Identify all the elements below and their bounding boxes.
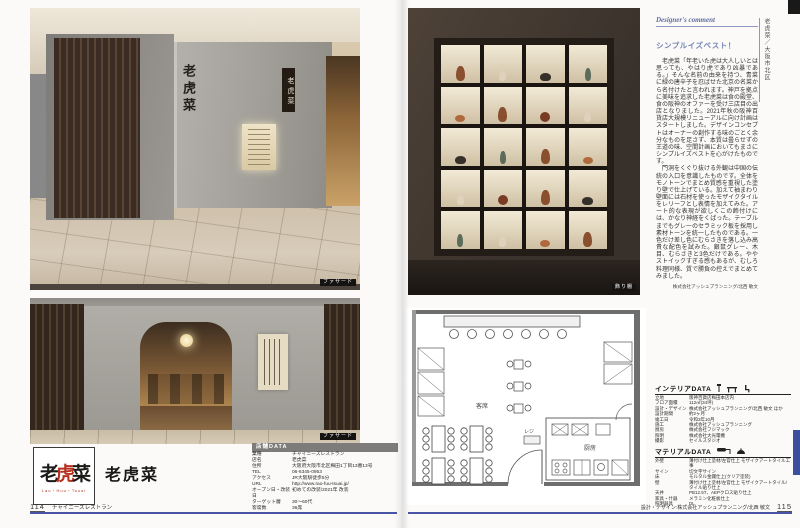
shelf-frame [434,38,614,256]
shelf-cell [569,170,608,208]
shelf-cell [526,45,565,83]
logo-char: 老 [40,464,56,485]
row-value: 初めての改装/2021年 改装 [292,488,398,500]
vase [457,234,463,247]
menu-board [242,124,276,170]
row-label: オープン日・改装日 [252,488,292,500]
category-edge-tab [793,430,800,475]
left-footer: 114チャイニーズレストラン [30,502,112,511]
table-row: 撮影セイルスタジオ [655,438,791,443]
comment-paragraph: 老虎菜「年老いた虎は大人しいとは思っても、やはり虎であり凶暴である。」そんな名前… [656,59,758,166]
material-icons [715,446,749,456]
calligraphy-sign: 老虎菜 [182,64,198,160]
corner-tab [788,0,800,14]
row-value: セイルスタジオ [689,438,791,443]
furniture-icons [715,383,755,393]
interior-data-table: インテリアDATA 立地阪神百貨店梅田本店内 フロア面積112㎡(34坪) 設計… [655,383,791,444]
shelf-cell [441,170,480,208]
row-value: 薄付け仕上塗材/左官仕上 モザイクアートタイル工事 [689,458,791,469]
material-data-table: マテリアルDATA 外壁薄付け仕上塗材/左官仕上 モザイクアートタイル工事 サイ… [655,446,791,507]
designer-comment-heading: Designer's comment [656,16,758,27]
logo-char: 菜 [72,464,88,485]
shelf-grid [441,45,607,249]
shelf-cell [484,128,523,166]
shelf-cell [441,128,480,166]
vase [499,71,506,81]
plan-label-kitchen: 厨房 [584,444,596,452]
wall-corner-edge [174,42,177,208]
vase [541,149,550,164]
shelf-cell [484,211,523,249]
teapot [540,240,550,247]
page-number-left: 114 [30,502,45,512]
logo-romaji: Lao・Huu・Tsuai [42,488,86,494]
display-shelf-photo: 飾り棚 [408,8,640,295]
pot [455,156,466,164]
page-number-right: 115 [777,502,792,512]
shelf-cell [484,170,523,208]
shelf-cell [526,87,565,125]
register-counter [524,436,540,444]
vase [500,151,506,164]
comment-title: シンプルイズベスト！ [656,40,758,51]
comment-paragraph: 門洞をくぐり抜ける外観は中国の伝統の入口を意識したものです。全体をモノトーンでま… [656,166,758,281]
plan-label-dining: 客席 [476,402,488,410]
comment-body: 老虎菜「年老いた虎は大人しいとは思っても、やはり虎であり凶暴である。」そんな名前… [656,59,758,281]
design-credit: 設計・デザイン:株式会社アッシュプランニング/北西 敏文 [641,505,770,511]
logo-calligraphy: 老虎菜 [40,459,88,486]
footer-rule-left [30,512,397,514]
wood-louver-wall [54,38,140,218]
photo-caption: 飾り棚 [612,284,636,291]
pot [540,73,551,81]
shelf-cell [569,45,608,83]
vase [584,112,591,122]
shelf-cell [441,45,480,83]
shop-data-table: 店舗DATA 業種チャイニーズレストラン 店名老虎菜 住所大阪府大阪市北区梅田1… [252,443,398,512]
calligraphy-art-panel [258,334,288,390]
pot [582,197,593,205]
photo-caption: ファサード [320,433,356,440]
facade-photo-main: 老虎菜 老虎菜 ファサード [30,8,360,290]
footer-rule-right [408,512,792,514]
row-label: 撮影 [655,438,689,443]
utility-rooms [418,348,444,416]
page-gutter [395,0,409,528]
table-row: 外壁薄付け仕上塗材/左官仕上 モザイクアートタイル工事 [655,458,791,469]
bowl [498,195,508,205]
vase [499,237,506,247]
plan-wall [634,310,640,486]
right-footer: 設計・デザイン:株式会社アッシュプランニング/北西 敏文115 [641,502,792,511]
shelf-cell [441,211,480,249]
comment-credit: 株式会社アッシュプランニング/北西 敏文 [656,284,758,290]
wood-panel-right [324,304,360,430]
material-data-header: マテリアルDATA [655,446,791,458]
page-index-tab: 老虎菜／大阪市北区 [759,18,771,102]
wood-panel-left [30,304,84,430]
row-label: 壁 [655,480,689,491]
plan-wall [412,482,508,486]
table-row: 壁薄付け仕上塗材/左官仕上 モザイクアートタイル/タイル貼り仕上 [655,480,791,491]
art-text-lines [264,339,282,385]
shelf-cell [569,128,608,166]
teapot [455,115,465,122]
shop-data-header: 店舗DATA [252,443,398,452]
counter-shadow [408,260,640,295]
vase [457,195,464,205]
plan-wall [412,310,416,486]
interior-floor [140,406,232,430]
logo-char: 虎 [56,464,72,485]
material-data-title: マテリアルDATA [655,446,711,456]
menu-text-lines [248,129,270,165]
hanging-sign: 老虎菜 [282,68,295,112]
vase [498,107,507,122]
shelf-cell [484,87,523,125]
shelf-cell [484,45,523,83]
photo-base-shadow [30,284,360,290]
floor-plan: 客席 厨房 レジ [406,308,646,505]
table-row: オープン日・改装日初めての改装/2021年 改装 [252,488,398,500]
vase [583,232,592,247]
row-label: 外壁 [655,458,689,469]
photo-caption: ファサード [320,279,356,286]
counter [444,316,580,327]
shelf-cell [569,211,608,249]
shop-logo: 老虎菜 Lao・Huu・Tsuai [33,447,95,505]
shelf-cell [441,87,480,125]
interior-data-title: インテリアDATA [655,383,711,393]
plan-wall [544,482,640,486]
shop-name-title: 老虎菜 [105,461,159,485]
designer-comment-column: Designer's comment シンプルイズベスト！ 老虎菜「年老いた虎は… [656,16,758,290]
interior-silhouette [148,374,224,404]
shelf-cell [526,170,565,208]
shelf-cell [526,211,565,249]
arch-opening [140,322,232,430]
vase [541,190,550,205]
row-value: 薄付け仕上塗材/左官仕上 モザイクアートタイル/タイル貼り仕上 [689,480,791,491]
chapter-label: チャイニーズレストラン [52,505,112,511]
plan-wall [412,310,640,314]
shelf-cell [569,87,608,125]
facade-photo-entrance: ファサード [30,298,360,444]
entrance-glow [326,56,360,206]
bowl [540,112,550,122]
vase [456,66,465,81]
pendant-lamp [180,334,193,347]
vase [585,68,591,81]
shelf-cell [526,128,565,166]
interior-data-header: インテリアDATA [655,383,791,395]
plan-label-register: レジ [524,429,534,435]
photo-floor [30,430,360,444]
teapot [583,157,593,164]
